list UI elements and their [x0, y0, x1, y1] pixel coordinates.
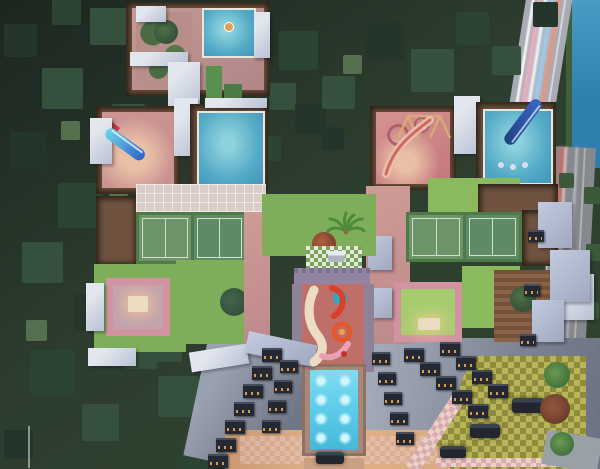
balcony-unit: [420, 362, 440, 376]
balcony-unit: [404, 348, 424, 362]
balcony-unit: [274, 380, 292, 393]
balcony-unit: [262, 348, 282, 362]
kids-pool-top-terrace: [202, 8, 256, 58]
balcony-unit: [396, 432, 414, 445]
pool-toy: [510, 164, 516, 170]
canal-water: [570, 0, 600, 168]
swimming-pool-right-tower: [483, 109, 553, 185]
underwater-light: [338, 374, 352, 388]
balcony-unit: [440, 342, 460, 356]
terrace-tree: [154, 20, 178, 44]
seating-courtyard-right: [394, 282, 462, 342]
balcony-unit: [390, 412, 408, 425]
balcony-unit: [436, 376, 456, 390]
palm-tree-plaza: [550, 432, 574, 456]
balcony-unit: [262, 420, 280, 433]
court-lines: [412, 218, 460, 256]
court-lines: [469, 218, 517, 256]
balcony-unit: [488, 384, 508, 398]
paved-grid-walk: [136, 184, 266, 212]
roof-edge-slab: [532, 300, 564, 342]
forest-canopy-stamp-bottom: [0, 0, 1, 1]
pool-float-toy: [224, 22, 234, 32]
bench: [418, 318, 440, 330]
balcony-unit: [384, 392, 402, 405]
balcony-unit: [216, 438, 236, 452]
parked-car: [470, 424, 500, 438]
car-at-entrance: [316, 452, 344, 464]
underwater-light: [338, 412, 352, 426]
palm-tree-plaza: [544, 362, 570, 388]
balcony-unit: [372, 352, 390, 365]
balcony-unit: [520, 334, 536, 346]
underwater-light: [314, 374, 328, 388]
roof-slab: [136, 6, 166, 22]
balcony-unit: [378, 372, 396, 385]
aerial-render-scene: [0, 0, 600, 469]
pool-toy: [498, 162, 504, 168]
tennis-courts-left: [136, 212, 248, 264]
balcony-unit: [528, 230, 544, 242]
balcony-unit: [252, 366, 272, 380]
court-lines: [142, 218, 188, 258]
underwater-light: [338, 393, 352, 407]
court-lines: [197, 218, 243, 258]
balcony-unit: [225, 420, 245, 434]
balcony-unit: [472, 370, 492, 384]
pool-toy: [522, 162, 528, 168]
swimming-pool-left-tower: [197, 111, 265, 187]
balcony-unit: [280, 360, 298, 373]
roof-slab: [372, 288, 392, 318]
underwater-light: [314, 431, 328, 445]
parked-car: [440, 446, 466, 458]
tennis-court: [194, 215, 246, 261]
underwater-light: [314, 393, 328, 407]
roof-slab: [86, 283, 104, 331]
tennis-courts-right: [406, 212, 522, 262]
roof-edge-slab: [550, 250, 590, 302]
roof-slab: [90, 118, 112, 164]
balcony-unit: [452, 390, 472, 404]
underwater-light: [338, 431, 352, 445]
balcony-unit: [243, 384, 263, 398]
tennis-court: [409, 215, 463, 259]
light-pole: [28, 426, 30, 468]
planter-deck: [96, 196, 138, 266]
red-brown-tree-plaza: [540, 394, 570, 424]
tennis-court: [139, 215, 191, 261]
play-terrace-floor: [376, 112, 450, 184]
roof-slab: [88, 348, 136, 366]
balcony-unit: [234, 402, 254, 416]
sofa-set: [128, 296, 148, 312]
cart-on-canopy: [328, 251, 345, 262]
balcony-unit: [468, 404, 488, 418]
roof-slab: [254, 12, 270, 58]
balcony-unit: [268, 400, 286, 413]
underwater-light: [314, 412, 328, 426]
tennis-court: [466, 215, 520, 259]
balcony-unit: [524, 284, 540, 296]
pool-edge-slab: [205, 98, 267, 108]
balcony-unit: [208, 454, 228, 468]
balcony-unit: [456, 356, 476, 370]
